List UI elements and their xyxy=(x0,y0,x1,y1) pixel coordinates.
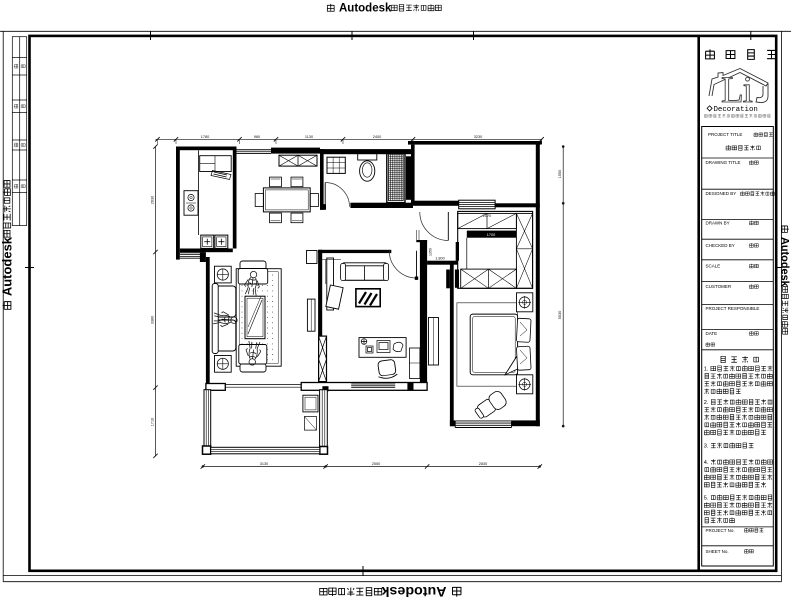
svg-text:CUSTOMER: CUSTOMER xyxy=(706,284,732,289)
svg-text:PROJECT TITLE: PROJECT TITLE xyxy=(708,132,742,137)
svg-text:3380: 3380 xyxy=(151,316,155,324)
svg-text:3130: 3130 xyxy=(260,462,268,466)
svg-text:SHEET No.: SHEET No. xyxy=(706,549,729,554)
svg-text:2400: 2400 xyxy=(373,135,381,139)
svg-text:1130: 1130 xyxy=(305,135,313,139)
svg-text:Autodesk: Autodesk xyxy=(339,3,392,15)
svg-text:1350: 1350 xyxy=(429,248,433,256)
svg-text:5.: 5. xyxy=(704,496,709,502)
svg-text:PROJECT RESPONSIBLE: PROJECT RESPONSIBLE xyxy=(706,306,760,311)
svg-text:Autodesk: Autodesk xyxy=(382,583,447,599)
svg-text:3.: 3. xyxy=(704,444,709,450)
svg-text:DRAWING TITLE: DRAWING TITLE xyxy=(706,160,741,165)
svg-text:2830: 2830 xyxy=(479,462,487,466)
svg-text:4.: 4. xyxy=(704,460,709,466)
svg-text:SCALE: SCALE xyxy=(706,264,721,269)
svg-text:1.800: 1.800 xyxy=(435,256,445,260)
svg-text:2550: 2550 xyxy=(372,462,380,466)
svg-text:1550: 1550 xyxy=(558,170,562,178)
svg-text:DRAWN BY: DRAWN BY xyxy=(706,221,730,226)
svg-text:Decoration: Decoration xyxy=(714,106,758,114)
svg-text:1780: 1780 xyxy=(201,135,209,139)
svg-text:Autodesk: Autodesk xyxy=(0,236,14,296)
svg-text:5530: 5530 xyxy=(558,311,562,319)
svg-text:Autodesk: Autodesk xyxy=(779,237,791,288)
svg-text:PROJECT No.: PROJECT No. xyxy=(706,528,735,533)
svg-text:2070: 2070 xyxy=(483,214,491,218)
svg-text:3230: 3230 xyxy=(474,135,482,139)
svg-text:2630: 2630 xyxy=(151,196,155,204)
svg-text:960: 960 xyxy=(254,135,260,139)
svg-text:1710: 1710 xyxy=(151,418,155,426)
svg-text:DATE: DATE xyxy=(706,331,718,336)
svg-text:2.: 2. xyxy=(704,400,709,406)
svg-text:1700: 1700 xyxy=(487,233,495,237)
svg-text:Li: Li xyxy=(721,70,753,111)
svg-text:1.: 1. xyxy=(704,367,709,373)
svg-text:DESIGNED BY: DESIGNED BY xyxy=(706,191,737,196)
svg-text:CHECKED BY: CHECKED BY xyxy=(706,243,735,248)
